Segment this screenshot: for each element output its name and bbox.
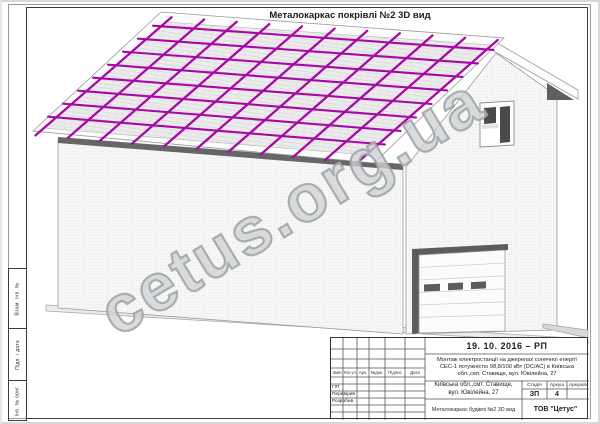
window-pane-right xyxy=(500,106,510,143)
tb-rev-header-zmin: Змін xyxy=(331,368,343,377)
tb-project-description: Монтаж електростанції на джерелах сонячн… xyxy=(425,354,589,381)
title-block: 19. 10. 2016 – РП Монтаж електростанції … xyxy=(330,337,588,419)
tb-rev-header-pidpys: Підпис xyxy=(385,368,405,377)
door-jamb-left xyxy=(412,249,419,334)
door-window-2 xyxy=(448,283,463,291)
tb-stage-header: Стадія xyxy=(522,381,547,389)
tb-stage-value: ЗП xyxy=(522,389,547,399)
tb-sheet-title: Металокаркас будівлі №2 3D вид xyxy=(425,399,522,420)
window-pane-left xyxy=(484,107,496,124)
tb-role-pereviryv: Перевірив xyxy=(332,392,358,397)
gable-window xyxy=(480,101,514,147)
door-window-1 xyxy=(424,284,440,292)
tb-sheet-header: Аркуш xyxy=(547,381,567,389)
tb-object-address: Київська обл.,смт. Ставище, вул. Ювілейн… xyxy=(425,381,522,399)
tb-rev-header-data: Дата xyxy=(405,368,425,377)
tb-company: ТОВ "Цетус" xyxy=(522,399,589,420)
door-window-3 xyxy=(471,281,486,289)
ramp-wedge xyxy=(543,324,588,338)
scanned-drawing-page: { "page": { "title": "Металокаркас покрі… xyxy=(0,0,600,424)
tb-sheet-value: 4 xyxy=(547,389,567,399)
tb-rev-header-ark: Арк. xyxy=(357,368,369,377)
tb-role-rozrobyv: Розробив xyxy=(332,399,358,404)
tb-date-code: 19. 10. 2016 – РП xyxy=(425,338,589,354)
front-wall xyxy=(58,140,403,334)
tb-role-gip: ГІП xyxy=(332,385,358,390)
garage-door xyxy=(412,244,508,334)
tb-sheets-value xyxy=(567,389,589,399)
tb-rev-header-kiluch: Кіл.уч xyxy=(343,368,357,377)
tb-sheets-header: Аркушів xyxy=(567,381,589,389)
tb-rev-header-ndok: №док. xyxy=(369,368,385,377)
